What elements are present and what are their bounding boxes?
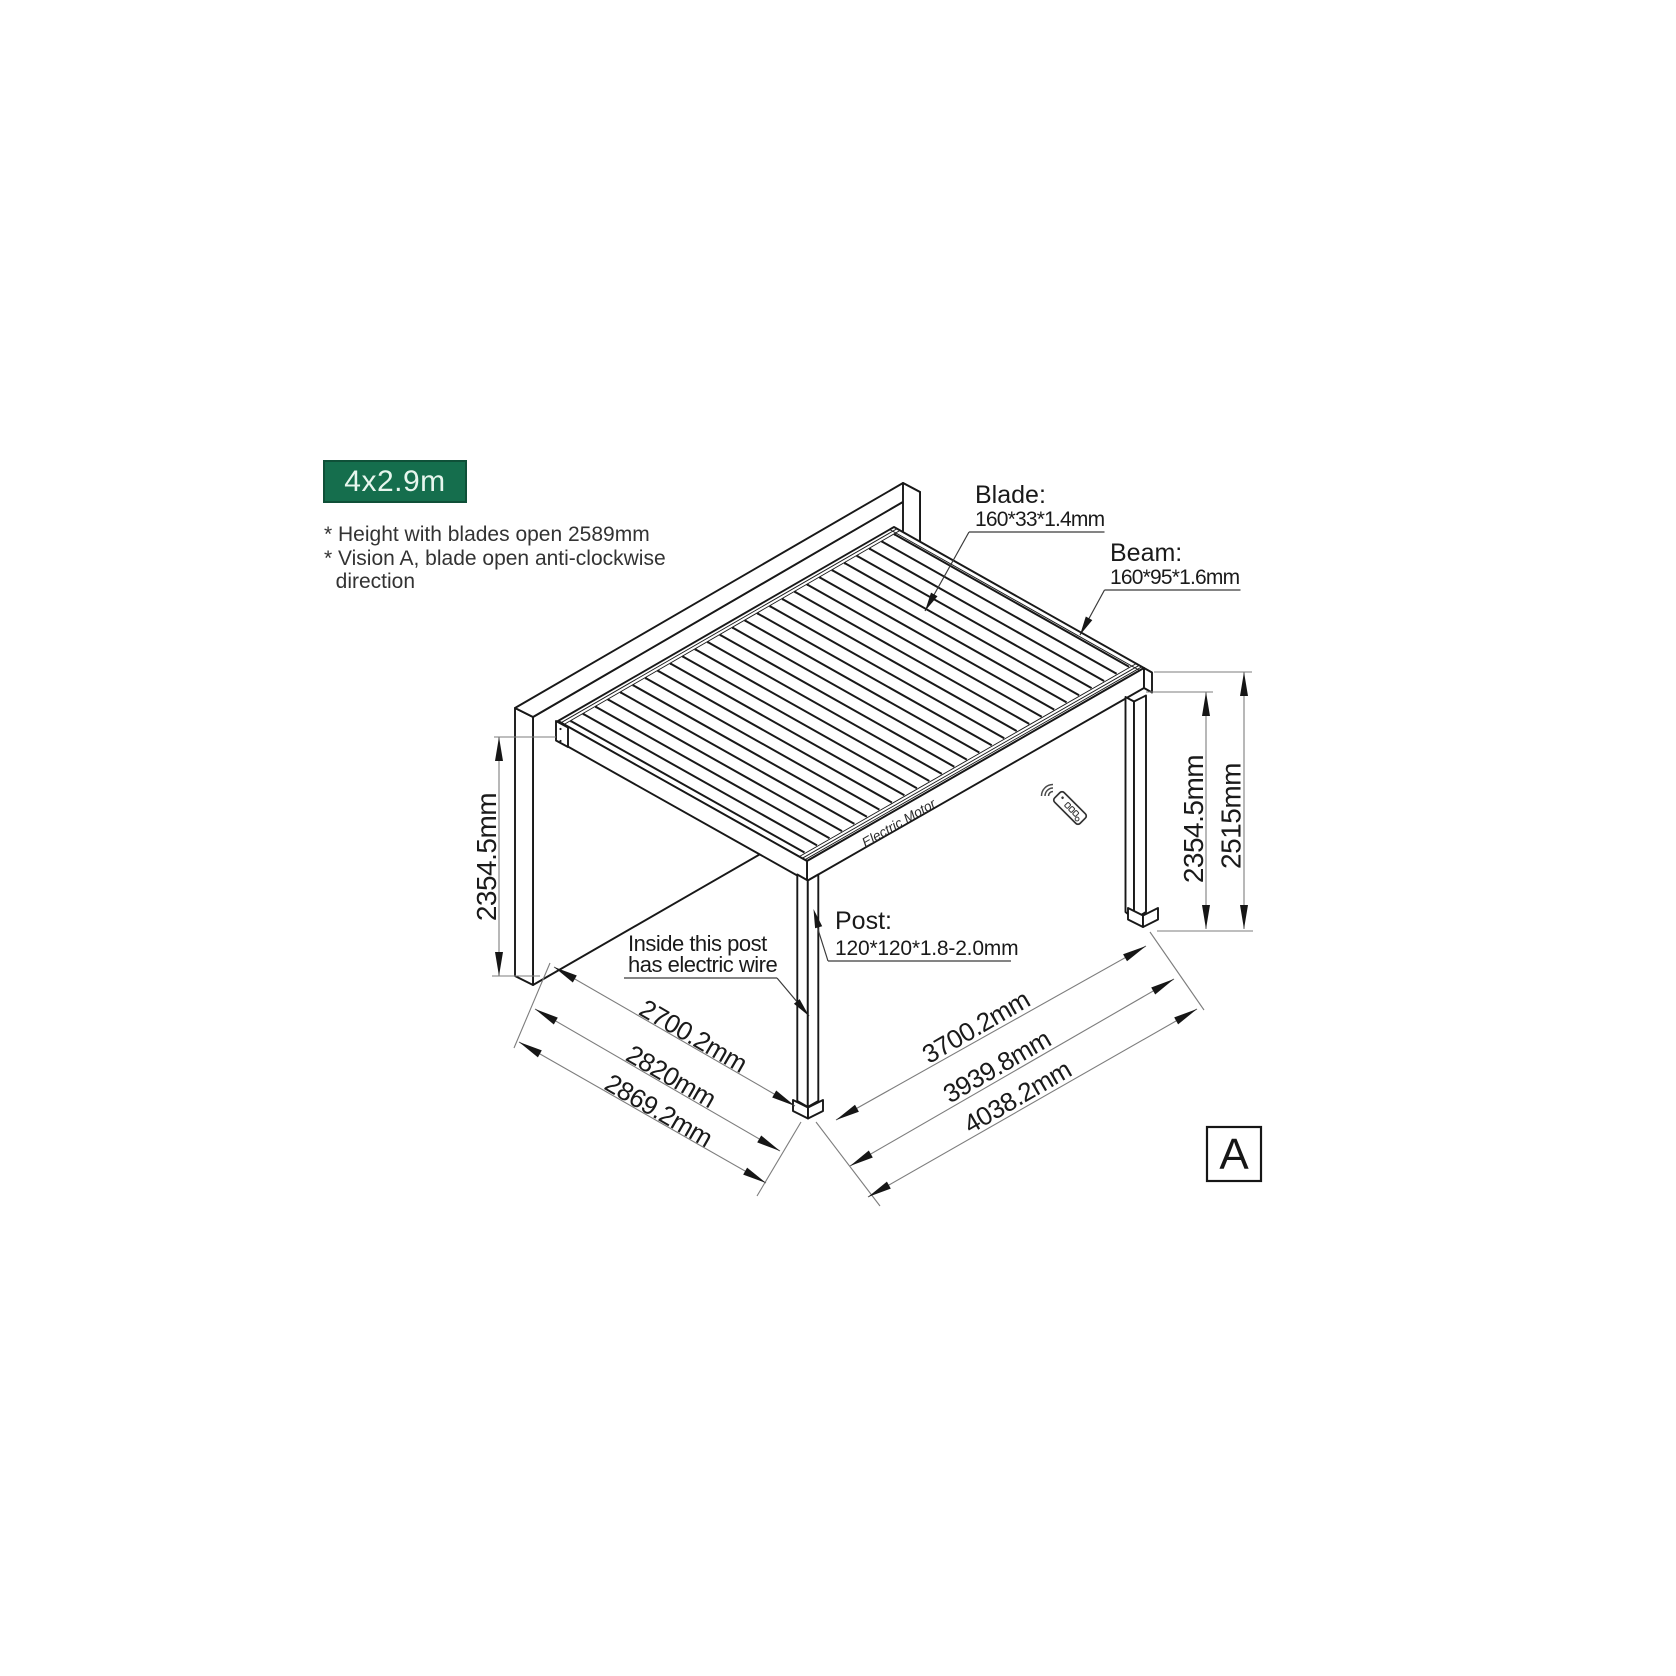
svg-text:Beam:: Beam: <box>1110 539 1182 567</box>
svg-text:A: A <box>1219 1130 1249 1179</box>
svg-text:2515mm: 2515mm <box>1216 763 1247 869</box>
svg-text:has electric wire: has electric wire <box>628 952 777 977</box>
svg-text:Blade:: Blade: <box>975 481 1046 509</box>
svg-text:120*120*1.8-2.0mm: 120*120*1.8-2.0mm <box>835 937 1018 960</box>
svg-text:2354.5mm: 2354.5mm <box>1178 755 1209 883</box>
svg-text:Post:: Post: <box>835 907 892 935</box>
svg-text:2354.5mm: 2354.5mm <box>471 793 502 921</box>
svg-text:160*33*1.4mm: 160*33*1.4mm <box>975 508 1105 531</box>
svg-text:160*95*1.6mm: 160*95*1.6mm <box>1110 566 1240 589</box>
